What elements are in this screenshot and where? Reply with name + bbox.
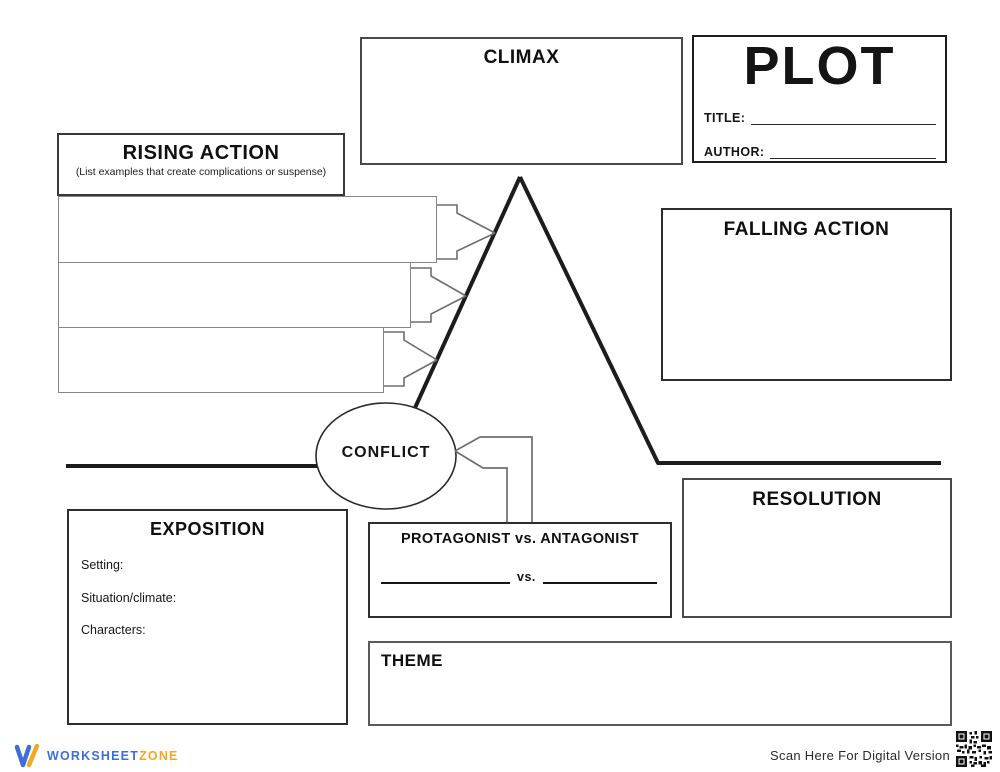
situation-climate-field-label: Situation/climate:	[81, 591, 176, 605]
plot-header-box: PLOT TITLE: AUTHOR:	[692, 35, 947, 163]
setting-field-label: Setting:	[81, 558, 123, 572]
rising-action-header: RISING ACTION (List examples that create…	[57, 133, 345, 196]
author-input-line[interactable]	[770, 145, 936, 159]
title-input-line[interactable]	[751, 111, 936, 125]
rising-action-subtitle: (List examples that create complications…	[59, 166, 343, 178]
falling-action-box[interactable]: FALLING ACTION	[661, 208, 952, 381]
vs-label: vs.	[517, 570, 536, 584]
rising-action-answer-box-1[interactable]	[58, 196, 437, 263]
theme-title: THEME	[381, 651, 950, 671]
antagonist-input-line[interactable]	[543, 569, 657, 584]
falling-action-title: FALLING ACTION	[663, 219, 950, 241]
scan-here-label: Scan Here For Digital Version	[770, 748, 950, 763]
resolution-box[interactable]: RESOLUTION	[682, 478, 952, 618]
exposition-title: EXPOSITION	[69, 519, 346, 540]
plot-heading: PLOT	[694, 39, 945, 93]
author-label: AUTHOR:	[704, 145, 764, 159]
exposition-box[interactable]: EXPOSITION Setting: Situation/climate: C…	[67, 509, 348, 725]
climax-box[interactable]: CLIMAX	[360, 37, 683, 165]
conflict-arrow-icon	[455, 437, 532, 522]
protagonist-antagonist-title: PROTAGONIST vs. ANTAGONIST	[370, 531, 670, 547]
climax-title: CLIMAX	[362, 47, 681, 69]
brand-text: WORKSHEETZONE	[47, 749, 179, 763]
conflict-label: CONFLICT	[316, 444, 456, 462]
worksheetzone-brand: WORKSHEETZONE	[14, 744, 179, 768]
plot-diagram-worksheet: CLIMAX PLOT TITLE: AUTHOR: RISING ACTION…	[0, 0, 1000, 772]
rising-action-answer-box-2[interactable]	[58, 262, 411, 328]
brand-word-zone: ZONE	[139, 749, 179, 763]
theme-box[interactable]: THEME	[368, 641, 952, 726]
rising-arrow-icon-2	[411, 268, 466, 322]
worksheetzone-logo-icon	[14, 744, 41, 768]
rising-arrow-icon-1	[437, 205, 495, 259]
rising-action-answer-box-3[interactable]	[58, 327, 384, 393]
protagonist-input-line[interactable]	[381, 569, 510, 584]
characters-field-label: Characters:	[81, 623, 146, 637]
rising-action-title: RISING ACTION	[59, 142, 343, 165]
resolution-title: RESOLUTION	[684, 489, 950, 511]
title-label: TITLE:	[704, 111, 745, 125]
protagonist-antagonist-box: PROTAGONIST vs. ANTAGONIST vs.	[368, 522, 672, 618]
qr-code	[956, 731, 992, 767]
brand-word-worksheet: WORKSHEET	[47, 749, 139, 763]
author-row: AUTHOR:	[704, 143, 936, 159]
rising-arrow-icon-3	[384, 332, 437, 386]
title-row: TITLE:	[704, 109, 936, 125]
vs-blank-row: vs.	[381, 568, 657, 584]
